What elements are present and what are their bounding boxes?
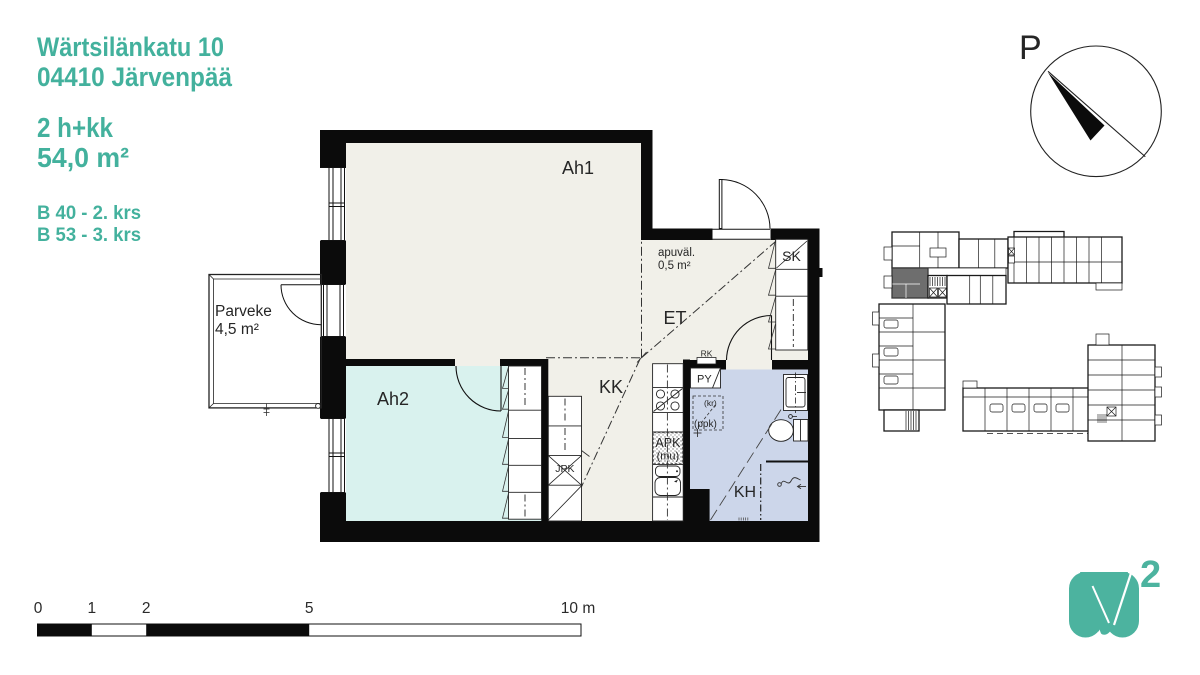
svg-text:5: 5 (305, 600, 314, 617)
svg-text:(mu): (mu) (657, 451, 680, 463)
svg-text:KK: KK (599, 377, 623, 397)
svg-text:RK: RK (701, 349, 713, 359)
svg-text:B 53 - 3. krs: B 53 - 3. krs (37, 224, 141, 246)
svg-text:04410 Järvenpää: 04410 Järvenpää (37, 62, 233, 92)
svg-text:apuväl.: apuväl. (658, 247, 695, 259)
svg-text:54,0 m²: 54,0 m² (37, 142, 129, 173)
svg-text:Ah2: Ah2 (377, 389, 409, 409)
svg-text:10 m: 10 m (561, 600, 595, 617)
svg-text:JPK: JPK (555, 463, 574, 475)
svg-text:2 h+kk: 2 h+kk (37, 112, 114, 143)
svg-text:0: 0 (34, 600, 43, 617)
svg-text:Wärtsilänkatu 10: Wärtsilänkatu 10 (37, 32, 224, 62)
svg-text:(ppk): (ppk) (694, 419, 717, 430)
svg-text:0,5 m²: 0,5 m² (658, 260, 691, 272)
svg-text:1: 1 (87, 600, 96, 617)
svg-text:KH: KH (734, 484, 756, 501)
svg-text:Parveke: Parveke (215, 303, 272, 320)
svg-text:B 40 - 2. krs: B 40 - 2. krs (37, 202, 141, 224)
svg-text:P: P (1019, 29, 1042, 67)
svg-text:4,5 m²: 4,5 m² (215, 321, 259, 338)
svg-text:(kr): (kr) (704, 398, 717, 408)
svg-text:Ah1: Ah1 (562, 158, 594, 178)
svg-text:APK: APK (655, 436, 681, 450)
svg-text:PY: PY (697, 374, 712, 386)
svg-text:SK: SK (782, 248, 801, 264)
svg-text:2: 2 (1140, 554, 1161, 596)
svg-text:2: 2 (142, 600, 151, 617)
svg-text:ET: ET (663, 308, 686, 328)
